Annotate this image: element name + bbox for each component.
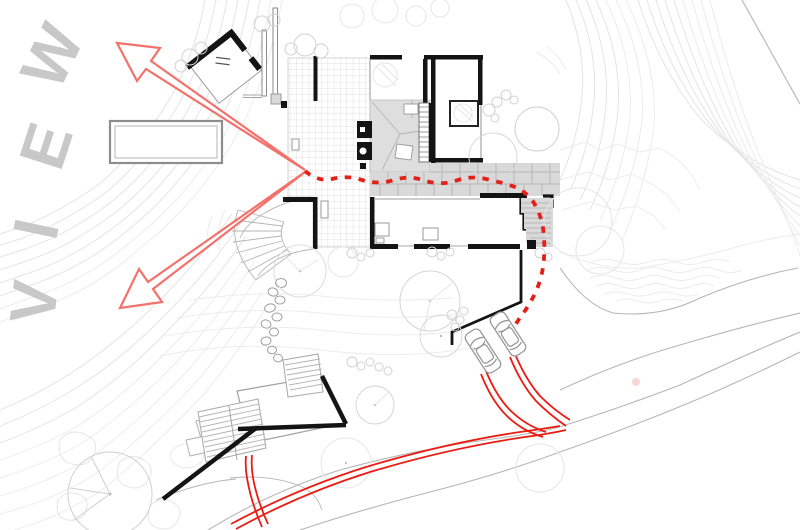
driveway-lines	[231, 426, 566, 529]
view-label: W E I V	[0, 13, 98, 327]
view-label-letter-v: V	[0, 277, 72, 327]
pink-marker-dot	[632, 378, 640, 386]
contour-lines-top-right	[560, 0, 800, 256]
tree-with-radials-2	[400, 271, 460, 331]
shrub-outlines	[57, 432, 204, 529]
car-1	[463, 327, 502, 375]
tree-with-radials-1	[274, 245, 326, 297]
site-plan-canvas: W E I V	[0, 0, 800, 530]
view-label-letter-i: I	[0, 213, 73, 245]
hillside-scribble-contours	[560, 234, 800, 303]
lower-view-arrow	[120, 172, 305, 308]
car-2	[488, 310, 527, 358]
stepping-stones	[260, 279, 286, 363]
upper-stair	[283, 354, 323, 397]
pool	[110, 121, 222, 163]
view-label-letter-e: E	[5, 115, 87, 178]
view-label-letter-w: W	[6, 13, 97, 99]
site-plan-drawing: W E I V	[0, 0, 800, 530]
living-room	[374, 199, 517, 244]
internal-stair	[419, 103, 433, 162]
property-boundary-line	[742, 0, 800, 104]
